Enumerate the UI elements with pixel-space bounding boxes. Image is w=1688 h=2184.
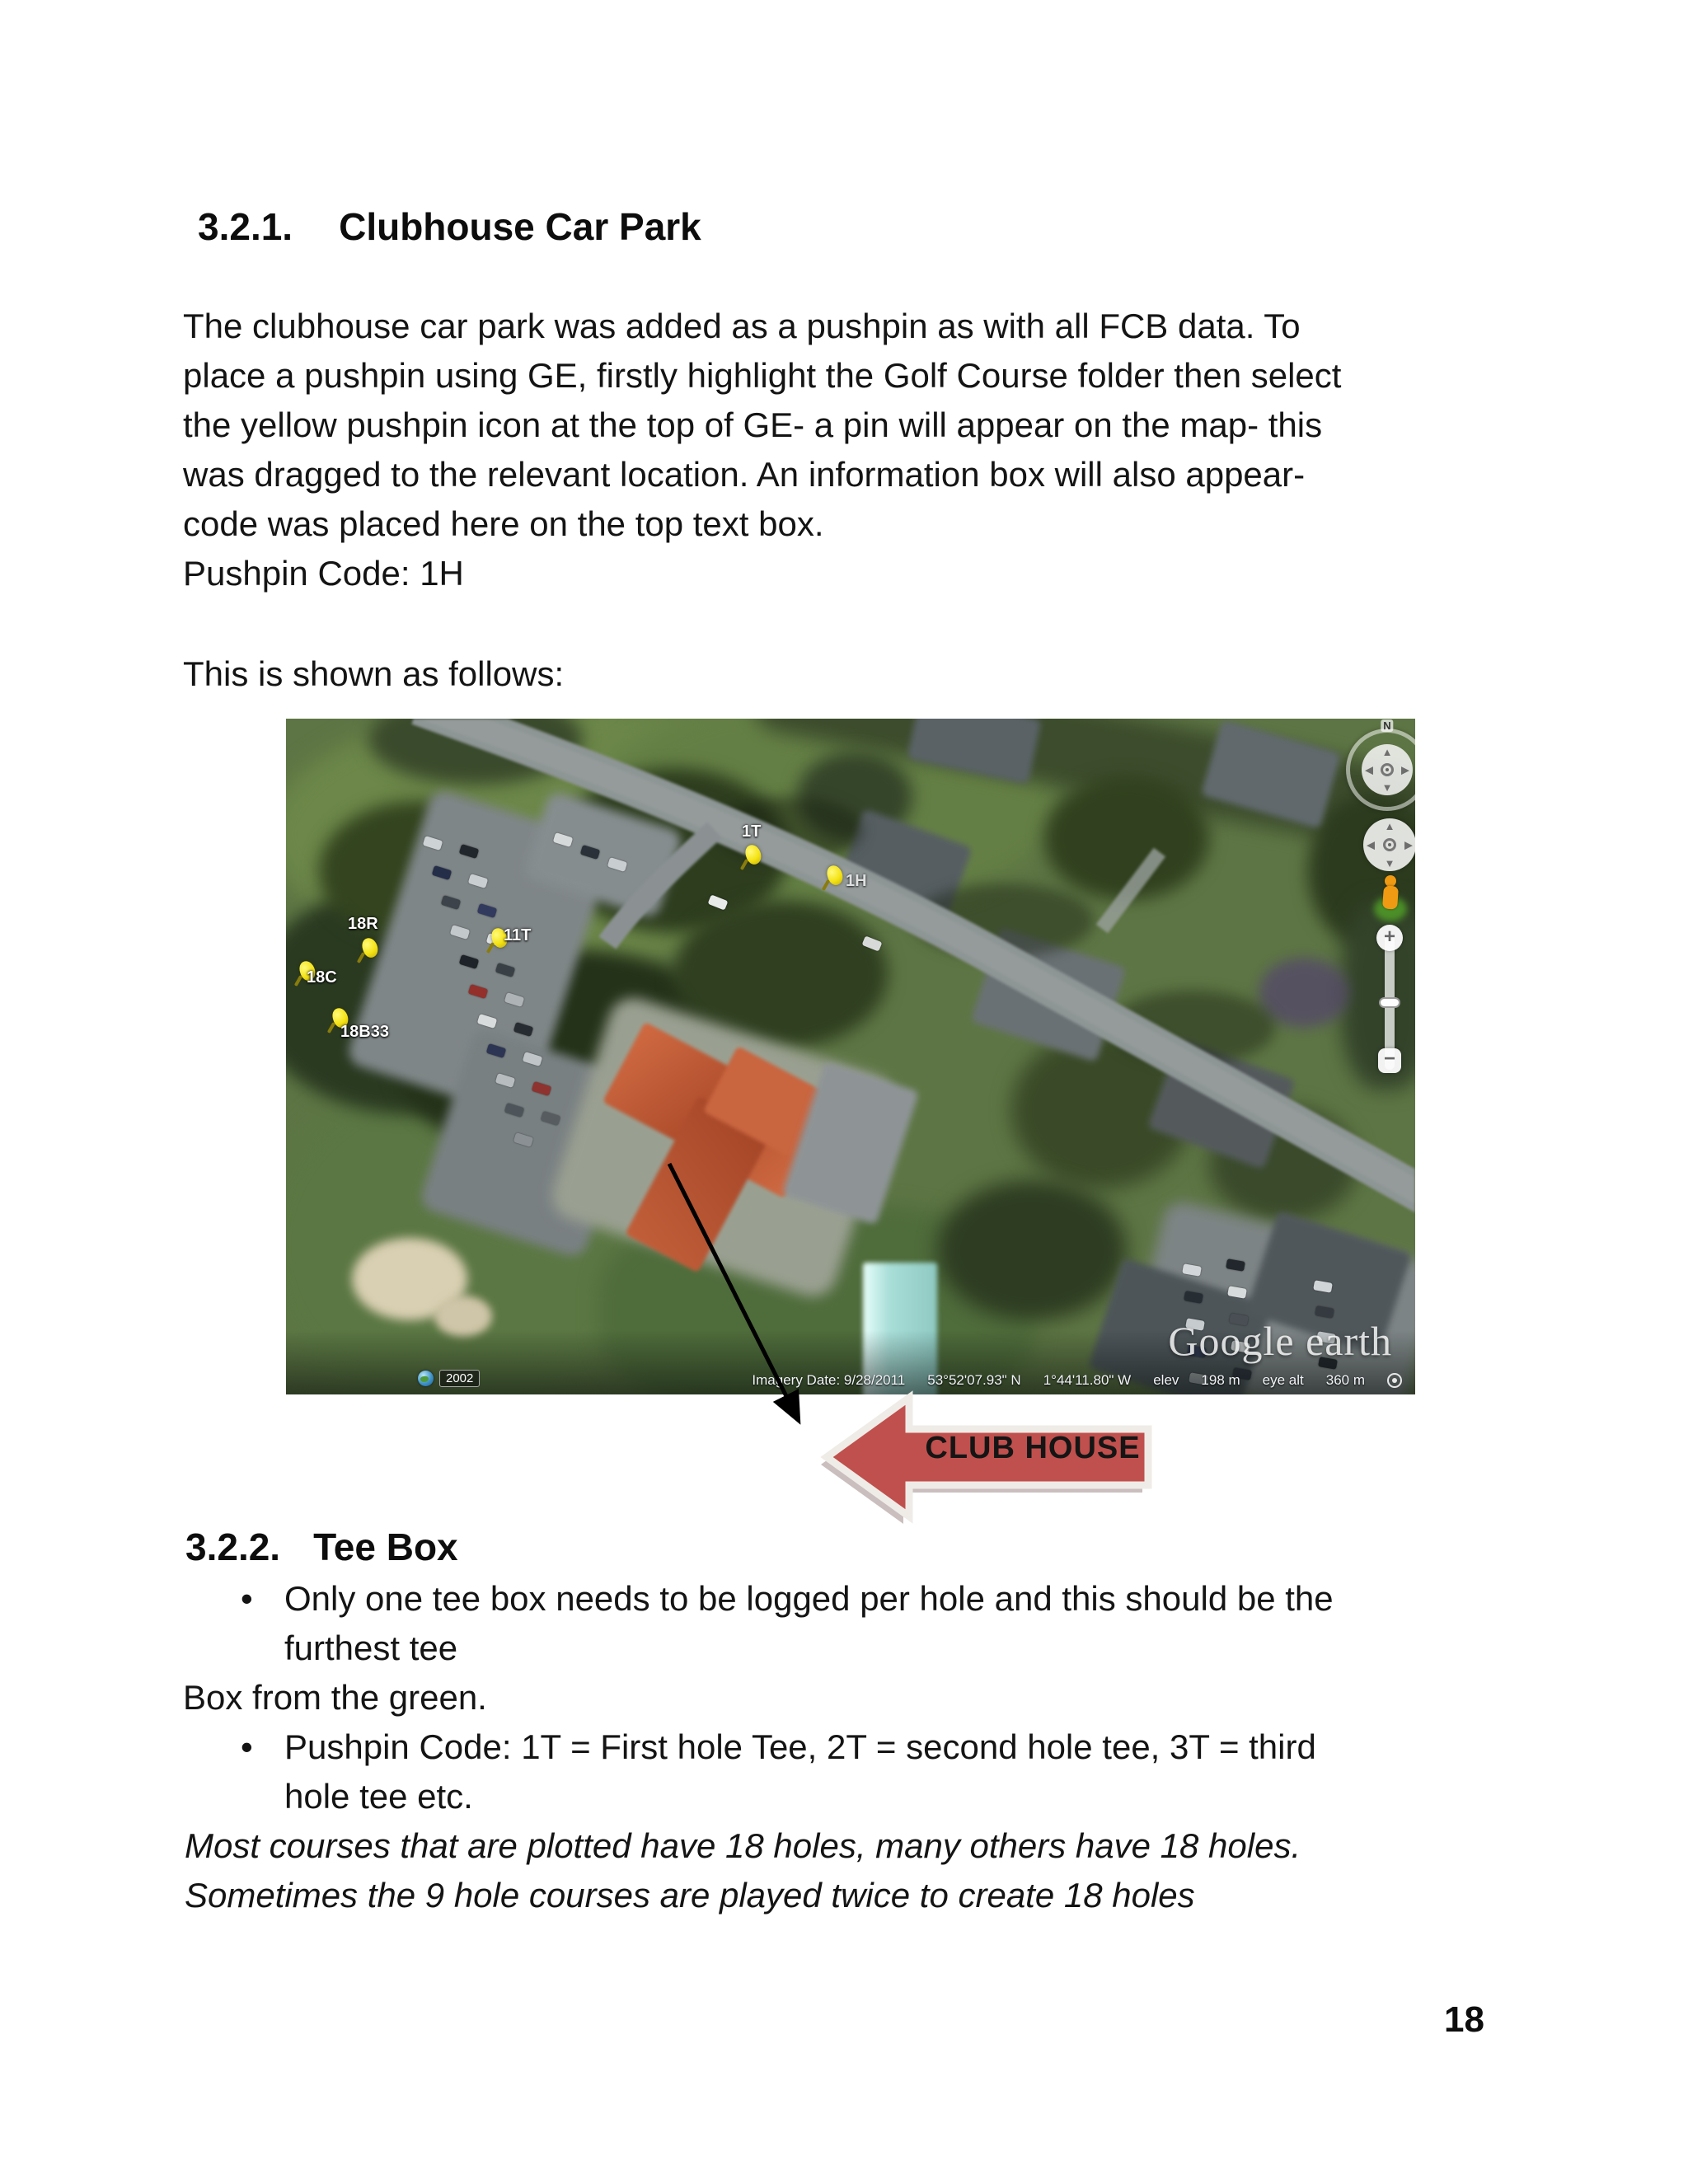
body-text-line: Box from the green. [183, 1673, 487, 1722]
section-322-heading: 3.2.2. Tee Box [185, 1525, 458, 1569]
zoom-out-button[interactable]: − [1378, 1048, 1401, 1073]
parked-cars [286, 719, 1415, 1394]
eye-alt-value: 360 m [1326, 1372, 1365, 1389]
pushpin-label: 18B33 [340, 1023, 389, 1042]
parked-car [513, 1132, 534, 1147]
parked-car [477, 1014, 498, 1029]
pushpin-label: 1H [846, 872, 867, 891]
parked-car [450, 925, 471, 940]
pegman-body [1382, 885, 1399, 909]
pushpin-label: 18R [348, 915, 378, 934]
parked-car [477, 903, 498, 918]
pushpin-label: 18C [307, 968, 337, 987]
parked-car [862, 935, 883, 951]
parked-car [580, 845, 601, 860]
parked-car [532, 1081, 552, 1096]
figure-intro-line: This is shown as follows: [183, 649, 564, 699]
parked-car [423, 836, 443, 851]
parked-car [459, 954, 480, 969]
eye-alt-label: eye alt [1263, 1372, 1304, 1389]
pushpin-18R[interactable]: 18R [359, 938, 380, 964]
parked-car [708, 894, 729, 910]
parked-car [541, 1111, 561, 1126]
parked-car [495, 1073, 516, 1088]
elev-label: elev [1153, 1372, 1179, 1389]
document-page: 3.2.1. Clubhouse Car Park The clubhouse … [0, 0, 1688, 2184]
pushpin-11T[interactable]: 11T [488, 928, 509, 954]
italic-note-line: Most courses that are plotted have 18 ho… [185, 1821, 1301, 1871]
zoom-slider-handle[interactable] [1379, 997, 1400, 1008]
parked-car [1184, 1291, 1203, 1304]
bullet-text-line: hole tee etc. [284, 1772, 473, 1821]
pushpin-code-line: Pushpin Code: 1H [183, 549, 464, 598]
parked-car [1226, 1258, 1245, 1272]
status-target-icon [1387, 1373, 1402, 1388]
look-up-arrow-icon[interactable]: ▲ [1382, 747, 1393, 757]
bullet-marker: • [241, 1722, 253, 1772]
parked-car [441, 895, 462, 910]
parked-car [468, 874, 489, 888]
move-center-icon[interactable] [1383, 838, 1396, 851]
timeline-year-badge: 2002 [439, 1370, 480, 1387]
pushpin-18B33[interactable]: 18B33 [329, 1008, 350, 1034]
google-earth-satellite-view[interactable]: 1T 1H 11T 18R 18C 18B33 N ▲ ▼ ◀ ▶ [286, 719, 1415, 1394]
latitude: 53°52'07.93" N [927, 1372, 1020, 1389]
parked-car [553, 832, 574, 847]
parked-car [468, 984, 489, 999]
pushpin-1H[interactable]: 1H [823, 865, 845, 892]
parked-car [513, 1022, 534, 1037]
google-earth-watermark: Google earth [1168, 1317, 1392, 1365]
club-house-label: CLUB HOUSE [921, 1431, 1144, 1466]
page-number: 18 [1444, 1999, 1484, 2041]
look-left-arrow-icon[interactable]: ◀ [1365, 765, 1373, 776]
parked-car [495, 963, 516, 977]
parked-car [504, 992, 525, 1007]
body-text-line: The clubhouse car park was added as a pu… [183, 302, 1301, 351]
longitude: 1°44'11.80" W [1043, 1372, 1132, 1389]
imagery-timeline-indicator[interactable]: 2002 [418, 1370, 480, 1387]
parked-car [486, 1043, 507, 1058]
section-322-title: Tee Box [313, 1525, 458, 1569]
body-text-line: was dragged to the relevant location. An… [183, 450, 1305, 499]
pushpin-label: 11T [504, 926, 531, 945]
pegman-head [1385, 875, 1396, 887]
compass-north-indicator: N [1381, 719, 1393, 732]
parked-car [607, 857, 628, 872]
move-up-arrow-icon[interactable]: ▲ [1385, 821, 1395, 832]
bullet-text-line: Only one tee box needs to be logged per … [284, 1574, 1334, 1624]
bullet-marker: • [241, 1574, 253, 1624]
section-321-heading: 3.2.1. Clubhouse Car Park [198, 204, 701, 249]
globe-icon [418, 1371, 434, 1386]
zoom-in-button[interactable]: + [1376, 925, 1403, 951]
move-right-arrow-icon[interactable]: ▶ [1404, 840, 1413, 851]
bullet-text-line: Pushpin Code: 1T = First hole Tee, 2T = … [284, 1722, 1316, 1772]
parked-car [523, 1052, 543, 1066]
section-321-title: Clubhouse Car Park [339, 204, 701, 249]
move-joystick[interactable]: ▲ ▼ ◀ ▶ [1363, 818, 1415, 871]
section-322-number: 3.2.2. [185, 1525, 280, 1569]
parked-car [1182, 1263, 1202, 1277]
parked-car [1313, 1280, 1333, 1293]
parked-car [504, 1103, 525, 1118]
body-text-line: the yellow pushpin icon at the top of GE… [183, 401, 1322, 450]
elev-value: 198 m [1201, 1372, 1240, 1389]
pushpin-1T[interactable]: 1T [742, 845, 763, 871]
parked-car [1227, 1286, 1247, 1299]
map-status-bar: Imagery Date: 9/28/2011 53°52'07.93" N 1… [752, 1372, 1402, 1389]
body-text-line: code was placed here on the top text box… [183, 499, 824, 549]
move-down-arrow-icon[interactable]: ▼ [1385, 858, 1395, 869]
bullet-text-line: furthest tee [284, 1624, 457, 1673]
body-text-line: place a pushpin using GE, firstly highli… [183, 351, 1341, 401]
look-center-eye-icon[interactable] [1381, 763, 1394, 776]
pushpin-18C[interactable]: 18C [296, 961, 317, 987]
look-right-arrow-icon[interactable]: ▶ [1401, 765, 1409, 776]
pushpin-label: 1T [742, 823, 761, 841]
imagery-date: Imagery Date: 9/28/2011 [752, 1372, 905, 1389]
look-joystick-inner[interactable]: ▲ ▼ ◀ ▶ [1362, 744, 1413, 795]
move-left-arrow-icon[interactable]: ◀ [1367, 840, 1375, 851]
parked-car [459, 844, 480, 859]
section-321-number: 3.2.1. [198, 204, 293, 249]
italic-note-line: Sometimes the 9 hole courses are played … [185, 1871, 1195, 1920]
look-down-arrow-icon[interactable]: ▼ [1382, 782, 1393, 793]
parked-car [432, 865, 452, 880]
street-view-pegman[interactable] [1377, 875, 1404, 921]
